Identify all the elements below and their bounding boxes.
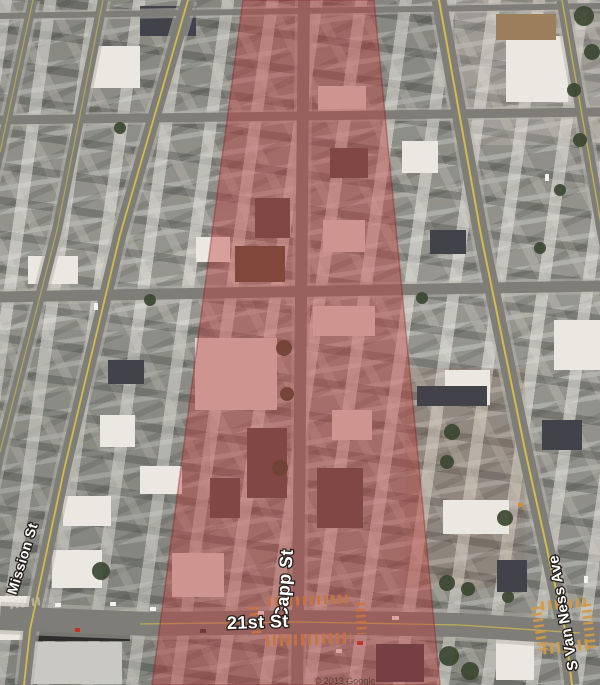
dirt-lot: [496, 14, 556, 40]
tree: [534, 242, 546, 254]
map-scene: Mission St Capp St 21st St S Van Ness Av…: [0, 0, 600, 685]
tree: [440, 455, 454, 469]
vehicle-red: [75, 628, 80, 632]
building-roof: [506, 36, 568, 102]
tree: [584, 44, 600, 60]
vehicle: [55, 603, 61, 607]
tree: [574, 6, 594, 26]
tree: [416, 292, 428, 304]
street-label-21st-st: 21st St: [227, 611, 289, 633]
tree: [92, 562, 110, 580]
tree: [461, 582, 475, 596]
tree: [444, 424, 460, 440]
vehicle: [545, 174, 549, 181]
building-roof: [402, 141, 438, 173]
tree: [439, 646, 459, 666]
building-roof: [100, 415, 135, 447]
tree: [567, 83, 581, 97]
building-roof-dark: [542, 420, 582, 450]
building-roof: [554, 320, 600, 370]
tree: [502, 591, 514, 603]
tree: [554, 184, 566, 196]
building-roof-dark: [417, 386, 487, 406]
map-attribution: © 2013 Google: [315, 676, 376, 685]
vehicle: [94, 303, 98, 310]
vehicle: [584, 576, 588, 583]
center-line: [0, 0, 33, 152]
tree: [573, 133, 587, 147]
tree: [144, 294, 156, 306]
building-roof-dark: [430, 230, 466, 254]
vehicle: [110, 602, 116, 606]
building-roof-dark: [108, 360, 144, 384]
building-roof: [140, 466, 182, 494]
tree: [114, 122, 126, 134]
building-roof-dark: [497, 560, 527, 592]
building-roof: [63, 496, 111, 526]
vehicle: [150, 607, 156, 611]
tree: [461, 662, 479, 680]
vehicle-orange: [518, 503, 523, 507]
tree: [497, 510, 513, 526]
map-viewport[interactable]: Mission St Capp St 21st St S Van Ness Av…: [0, 0, 600, 685]
tree: [439, 575, 455, 591]
